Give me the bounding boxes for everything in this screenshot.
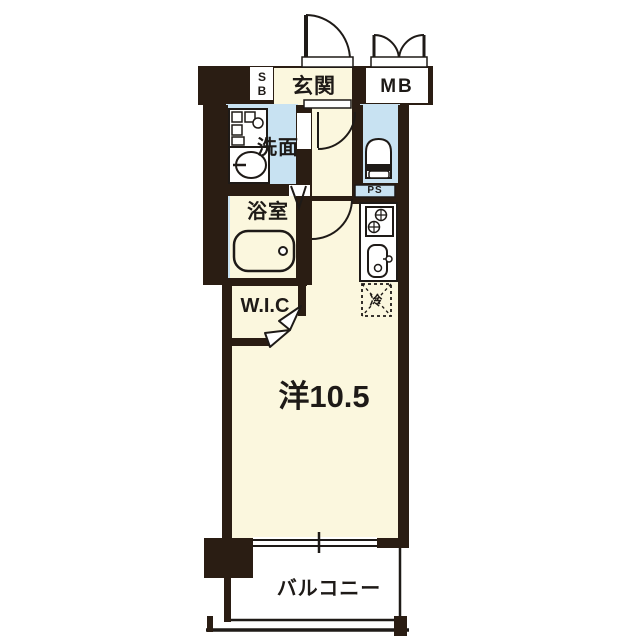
walk-in-closet-label: W.I.C — [232, 294, 298, 318]
main-room-label: 洋10.5 — [250, 376, 398, 416]
meter-box-label: MB — [366, 71, 428, 101]
balcony-label: バルコニー — [256, 576, 402, 602]
bathroom-label: 浴室 — [240, 200, 296, 224]
floor-plan: 玄関 MB SB 洗面 浴室 PS W.I.C 洋10.5 冷 バルコニー — [0, 0, 640, 640]
stove-icon — [366, 207, 393, 236]
washroom-label: 洗面 — [250, 136, 306, 160]
entrance-door-swing-icon — [306, 15, 350, 60]
entrance-label: 玄関 — [276, 70, 352, 102]
toilet-icon — [365, 139, 392, 178]
shoe-box-label: SB — [250, 67, 274, 100]
refrigerator-label: 冷 — [366, 292, 386, 308]
pipe-space-label: PS — [355, 184, 395, 197]
